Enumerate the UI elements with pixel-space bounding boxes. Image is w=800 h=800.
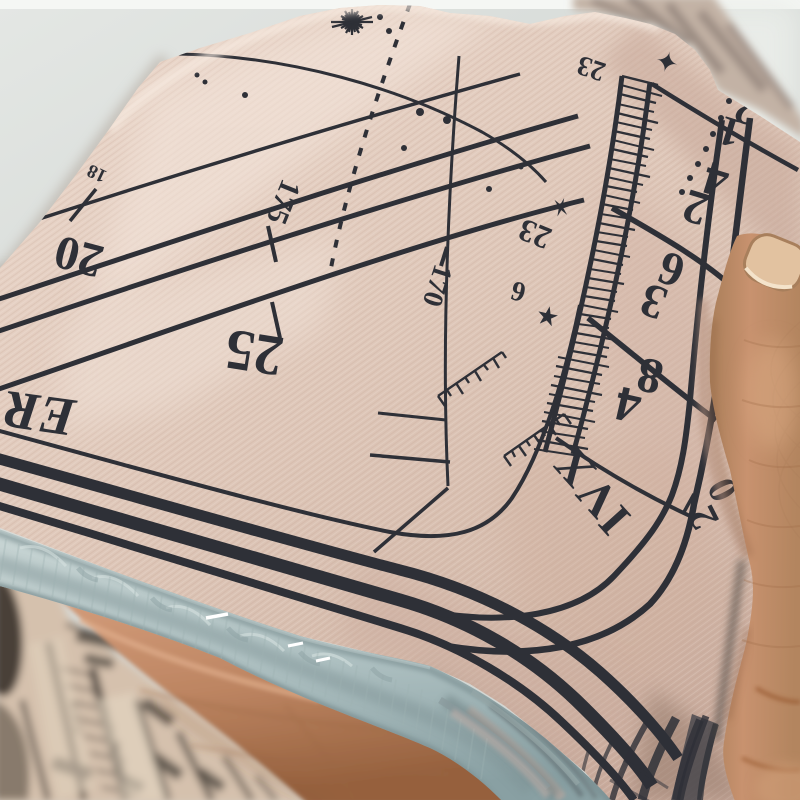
svg-text:ER: ER	[0, 379, 80, 449]
svg-text:25: 25	[220, 316, 287, 389]
